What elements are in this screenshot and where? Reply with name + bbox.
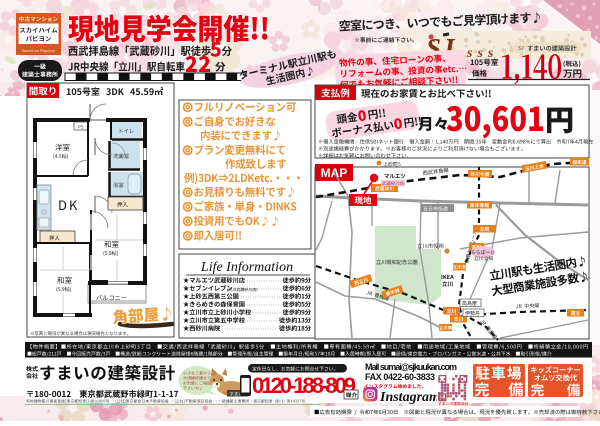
svg-text:Mail sumai@sjkuukan.com: Mail sumai@sjkuukan.com — [365, 362, 457, 372]
svg-text:sss: sss — [466, 46, 498, 61]
svg-text:Instagram: Instagram — [379, 390, 440, 405]
svg-text:FAX 0422-60-3833: FAX 0422-60-3833 — [365, 372, 435, 382]
svg-text:Sumai no Papiyon: Sumai no Papiyon — [22, 48, 56, 53]
svg-text:Life Information: Life Information — [200, 260, 293, 275]
svg-text:SJ: SJ — [518, 46, 524, 52]
svg-text:0120-188-809: 0120-188-809 — [252, 373, 356, 398]
